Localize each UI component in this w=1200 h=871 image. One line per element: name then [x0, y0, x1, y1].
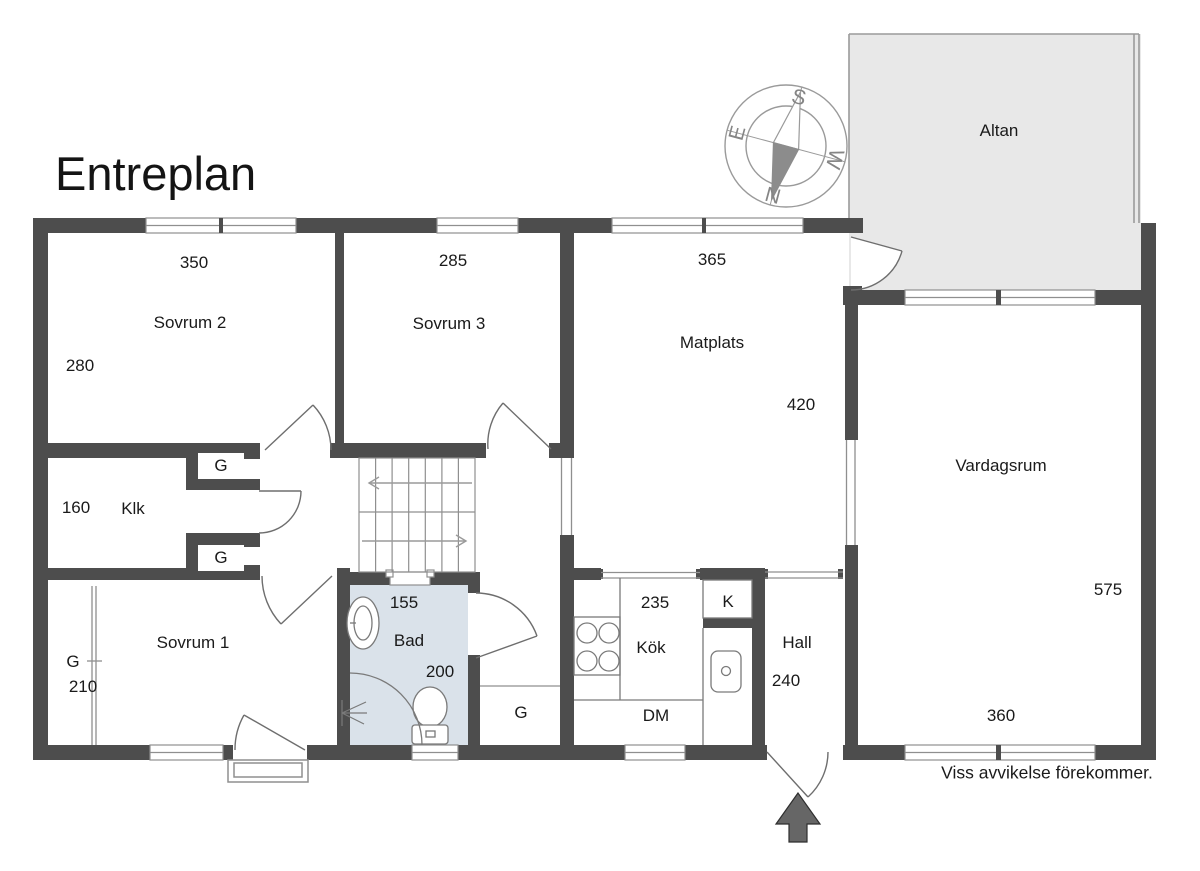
dim-vardagsrum-depth: 575	[1094, 580, 1122, 600]
room-label-altan: Altan	[980, 121, 1019, 141]
room-label-hall: Hall	[782, 633, 811, 653]
room-label-sovrum2: Sovrum 2	[154, 313, 227, 333]
room-label-bad: Bad	[394, 631, 424, 651]
room-label-klk: Klk	[121, 499, 145, 519]
closet-label-k: K	[722, 592, 733, 612]
dim-kok: 235	[641, 593, 669, 613]
dim-sovrum3-width: 285	[439, 251, 467, 271]
page-title: Entreplan	[55, 146, 256, 201]
dim-sovrum2-width: 350	[180, 253, 208, 273]
dim-matplats-depth: 420	[787, 395, 815, 415]
altan-deck	[849, 34, 1141, 290]
entrance-arrow-icon	[776, 793, 820, 842]
room-label-vardagsrum: Vardagsrum	[955, 456, 1046, 476]
room-label-kok: Kök	[636, 638, 665, 658]
floor-plan: S W N E Entreplan Altan 350 Sovrum 2 280…	[0, 0, 1200, 871]
closet-interiors	[198, 453, 260, 571]
dim-matplats-width: 365	[698, 250, 726, 270]
room-label-matplats: Matplats	[680, 333, 744, 353]
closet-label-g-upper: G	[214, 456, 227, 476]
disclaimer-text: Viss avvikelse förekommer.	[941, 763, 1153, 784]
dim-klk: 160	[62, 498, 90, 518]
compass-s: S	[789, 85, 808, 111]
dim-vardagsrum-width: 360	[987, 706, 1015, 726]
dim-bad-width: 155	[390, 593, 418, 613]
floor-plan-drawing: S W N E	[0, 0, 1200, 871]
closet-label-g-lower: G	[214, 548, 227, 568]
dim-sovrum1: 210	[69, 677, 97, 697]
compass-n: N	[763, 181, 784, 207]
entry-step	[228, 760, 308, 782]
compass-icon: S W N E	[725, 85, 849, 208]
compass-w: W	[821, 146, 848, 171]
room-label-sovrum3: Sovrum 3	[413, 314, 486, 334]
dim-bad-depth: 200	[426, 662, 454, 682]
kitchen-sink	[711, 651, 741, 692]
appliance-label-dm: DM	[643, 706, 669, 726]
dim-sovrum2-depth: 280	[66, 356, 94, 376]
compass-e: E	[725, 123, 751, 142]
staircase	[359, 458, 475, 572]
room-label-sovrum1: Sovrum 1	[157, 633, 230, 653]
closet-label-g-hall: G	[514, 703, 527, 723]
dim-hall: 240	[772, 671, 800, 691]
closet-label-g-sovrum1: G	[66, 652, 79, 672]
